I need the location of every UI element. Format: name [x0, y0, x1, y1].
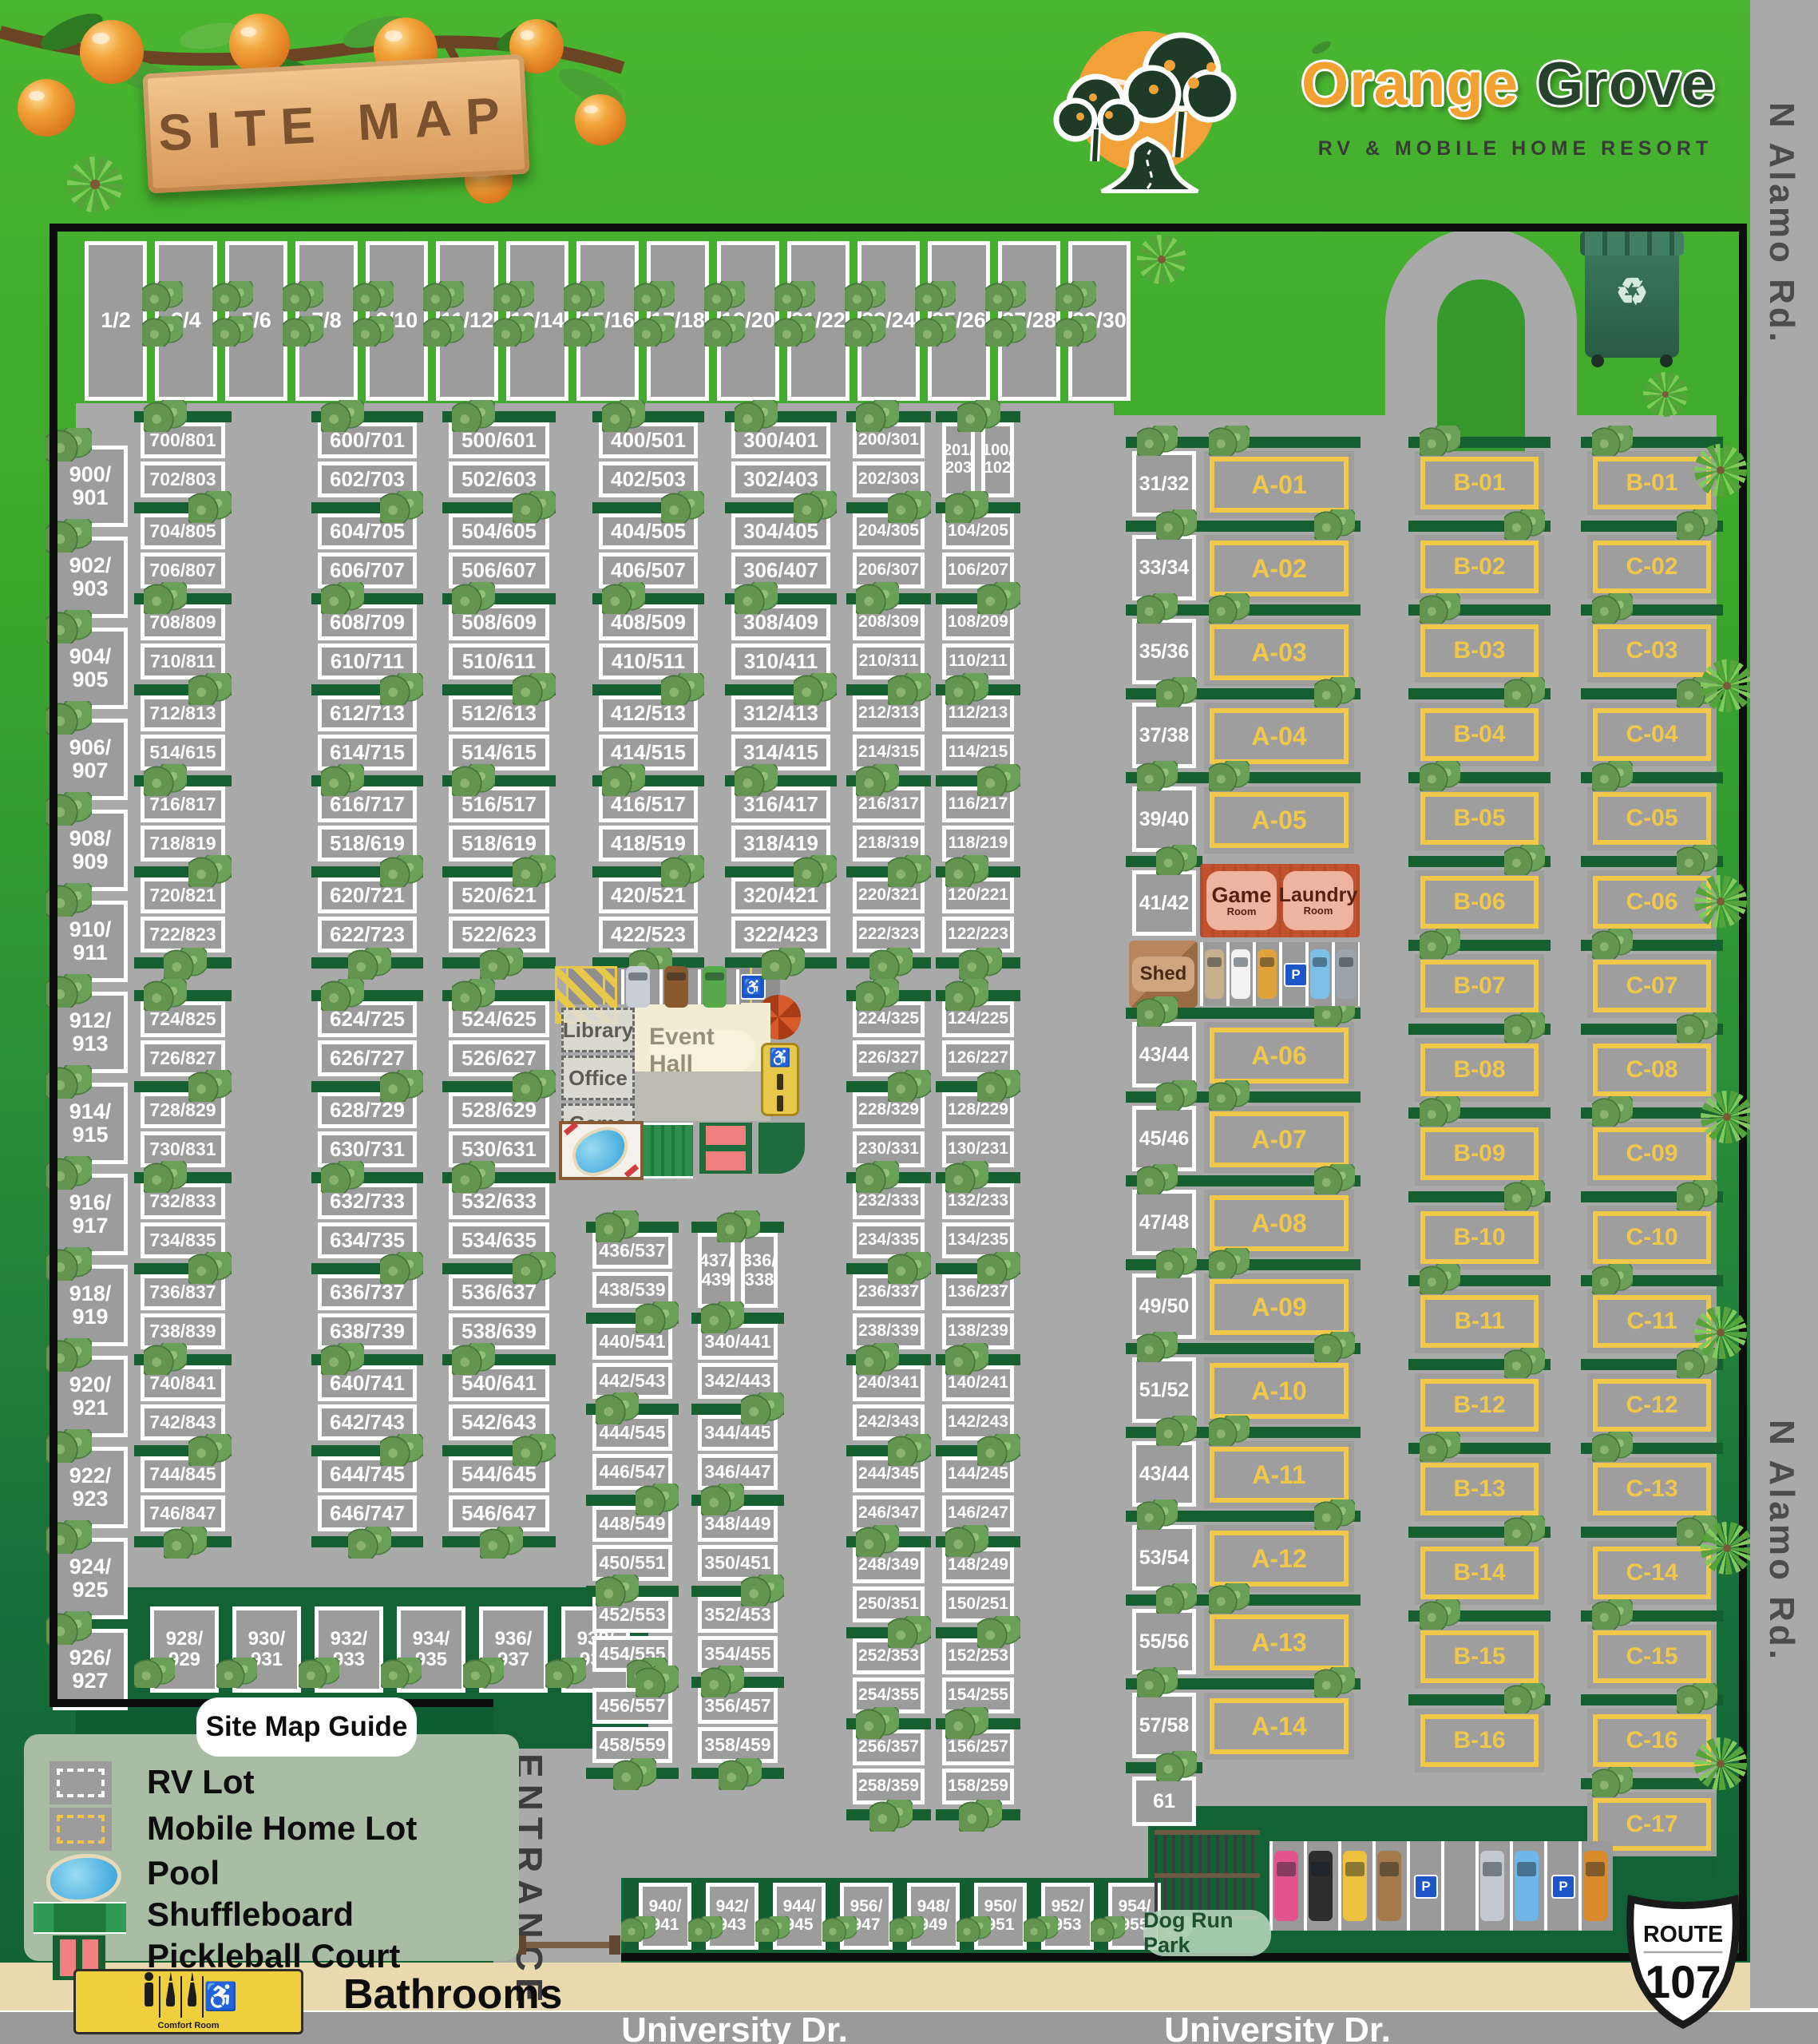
bush-icon [856, 764, 899, 796]
pool-area [559, 1121, 644, 1180]
bush-icon [493, 316, 534, 347]
dumpster-wheel-left [1591, 355, 1604, 367]
rv-lot: 35/36 [1132, 619, 1196, 684]
university-label-right: University Dr. [1118, 2010, 1437, 2044]
rv-lot: 1/2 [85, 241, 147, 401]
mobile-home-lot: B-03 [1415, 619, 1544, 683]
bush-icon [735, 764, 778, 796]
mobile-home-lot: C-02 [1587, 535, 1717, 599]
mobile-home-lot: B-14 [1415, 1541, 1544, 1605]
mobile-home-lot-border: B-08 [1420, 1044, 1539, 1096]
bush-icon [1677, 845, 1717, 875]
event-hall-label: Event Hall [649, 1024, 756, 1078]
mobile-home-lot: C-09 [1587, 1122, 1717, 1186]
mobile-home-lot: A-10 [1204, 1357, 1354, 1424]
dog-run-label-pill: Dog Run Park [1143, 1910, 1271, 1956]
bush-icon [380, 1070, 423, 1102]
mobile-home-lot: C-07 [1587, 954, 1717, 1018]
mobile-home-lot-border: C-12 [1593, 1379, 1711, 1432]
bush-icon [452, 1343, 495, 1375]
bush-icon [701, 1301, 744, 1333]
bush-icon [945, 855, 988, 887]
bush-icon [1592, 593, 1633, 624]
mobile-home-lot-border: B-13 [1420, 1463, 1539, 1515]
bush-icon [188, 1252, 232, 1284]
bush-icon [452, 400, 495, 432]
palm-icon [1643, 372, 1688, 417]
route-number: 107 [1645, 1957, 1721, 2008]
bush-icon [353, 281, 394, 311]
mobile-home-lot-border: C-07 [1593, 960, 1711, 1012]
mobile-home-lot-border: A-04 [1210, 708, 1349, 764]
mobile-home-lot-border: A-11 [1210, 1447, 1349, 1503]
dog-run-fence [1155, 1830, 1260, 1876]
bush-icon [283, 281, 323, 311]
bush-icon [1209, 1248, 1250, 1278]
mobile-home-lot-border: C-06 [1593, 876, 1711, 929]
palm-icon [1701, 1522, 1753, 1575]
bush-icon [380, 491, 423, 523]
mobile-home-lot-border: B-09 [1420, 1127, 1539, 1180]
bush-icon [380, 855, 423, 887]
entrance-gate-post-right [609, 1935, 620, 1955]
mobile-home-lot-border: B-03 [1420, 624, 1539, 677]
bush-icon [1420, 929, 1460, 959]
mobile-home-lot-border: C-10 [1593, 1211, 1711, 1264]
bush-icon [889, 1916, 924, 1942]
mobile-home-lot-border: A-08 [1210, 1195, 1349, 1251]
car-icon [1274, 1851, 1298, 1921]
bush-icon [762, 948, 805, 980]
bush-icon [348, 1527, 391, 1559]
parking-sign-icon: P [1284, 963, 1308, 987]
bush-icon [321, 764, 364, 796]
mobile-home-lot: B-06 [1415, 870, 1544, 934]
woman-figure-icon [188, 1983, 196, 2006]
bush-icon [822, 1916, 857, 1942]
bush-icon [719, 1758, 762, 1790]
mobile-home-lot-border: A-02 [1210, 541, 1349, 596]
mobile-home-lot-border: C-09 [1593, 1127, 1711, 1180]
bush-icon [621, 1916, 656, 1942]
mobile-home-lot-border: B-10 [1420, 1211, 1539, 1264]
bush-icon [283, 316, 323, 347]
rv-lot: 51/52 [1132, 1357, 1196, 1423]
mobile-home-lot-border: B-01 [1593, 457, 1711, 509]
bush-icon [636, 1666, 679, 1697]
pickleball-court [699, 1123, 752, 1174]
mobile-home-lot: B-12 [1415, 1373, 1544, 1437]
bush-icon [794, 673, 837, 705]
bush-icon [380, 1434, 423, 1466]
rv-lot: 37/38 [1132, 703, 1196, 768]
mobile-home-lot: B-09 [1415, 1122, 1544, 1186]
bush-icon [1420, 426, 1460, 456]
bush-icon [1091, 1916, 1125, 1942]
rv-lot: 49/50 [1132, 1274, 1196, 1339]
car-icon [703, 966, 727, 1008]
comfort-figure-icon [777, 1095, 783, 1111]
mobile-home-lot-border: B-14 [1420, 1547, 1539, 1599]
n-alamo-label-top: N Alamo Rd. [1761, 72, 1801, 375]
legend-shuffleboard-label: Shuffleboard [147, 1895, 354, 1934]
car-icon [1515, 1851, 1539, 1921]
bush-icon [381, 1658, 422, 1688]
bush-icon [144, 979, 187, 1011]
legend-mobile-home-label: Mobile Home Lot [147, 1809, 417, 1848]
bush-icon [977, 1252, 1020, 1284]
bush-icon [1314, 509, 1355, 540]
mobile-home-lot: A-12 [1204, 1525, 1354, 1592]
library-label: Library [563, 1018, 633, 1043]
bush-icon [1420, 593, 1460, 624]
palm-icon [1701, 660, 1753, 712]
bush-icon [423, 281, 464, 311]
bush-icon [1420, 1096, 1460, 1127]
site-map-sign: SITE MAP [142, 54, 529, 194]
legend-title: Site Map Guide [206, 1711, 408, 1743]
game-room-label: Game [1211, 885, 1271, 906]
brand-subtitle: RV & MOBILE HOME RESORT [1308, 137, 1723, 160]
bush-icon [1592, 1432, 1633, 1462]
bush-icon [1156, 845, 1197, 875]
bush-icon [1504, 677, 1545, 707]
car-icon [1337, 949, 1356, 999]
bush-icon [1314, 1332, 1355, 1362]
mobile-home-lot: A-03 [1204, 619, 1354, 686]
bush-icon [1420, 761, 1460, 791]
bush-icon [144, 1343, 187, 1375]
bush-icon [452, 582, 495, 614]
palm-icon [1694, 1306, 1747, 1359]
bush-icon [1137, 1499, 1178, 1530]
mobile-home-lot-border: C-16 [1593, 1714, 1711, 1767]
bush-icon [856, 1707, 899, 1739]
bush-icon [856, 1161, 899, 1193]
rv-lot: 43/44 [1132, 1022, 1196, 1087]
rv-lot: 57/58 [1132, 1693, 1196, 1758]
mobile-home-lot-border: B-15 [1420, 1630, 1539, 1683]
bush-icon [945, 1525, 988, 1557]
dog-run-label: Dog Run Park [1143, 1908, 1271, 1958]
mobile-home-lot-border: A-13 [1210, 1614, 1349, 1670]
bush-icon [1137, 1667, 1178, 1697]
bush-icon [717, 1210, 760, 1242]
bush-icon [741, 1392, 784, 1424]
bush-icon [869, 1800, 913, 1832]
route-107-shield: ROUTE 107 [1621, 1891, 1745, 2034]
mobile-home-lot-border: A-03 [1210, 624, 1349, 680]
bush-icon [513, 673, 556, 705]
bush-icon [774, 316, 815, 347]
event-hall-building: Event Hall [635, 1003, 770, 1121]
comfort-room-sign: ♿ [761, 1043, 799, 1116]
bush-icon [735, 400, 778, 432]
shuffleboard-courts [644, 1123, 693, 1178]
bush-icon [977, 764, 1020, 796]
lounger-icon [564, 1122, 578, 1135]
mobile-home-lot: C-03 [1587, 619, 1717, 683]
bush-icon [348, 948, 391, 980]
mobile-home-lot-border: A-09 [1210, 1279, 1349, 1335]
bush-icon [142, 281, 183, 311]
mobile-home-lot-border: B-04 [1420, 708, 1539, 761]
game-room-sub: Room [1227, 906, 1257, 917]
mobile-home-lot-border: B-02 [1420, 541, 1539, 593]
bush-icon [888, 1616, 931, 1648]
mobile-home-lot-border: A-12 [1210, 1531, 1349, 1586]
mobile-home-lot: B-16 [1415, 1709, 1544, 1773]
bush-icon [596, 1392, 639, 1424]
bush-icon [915, 281, 956, 311]
mobile-home-lot-border: C-15 [1593, 1630, 1711, 1683]
mobile-home-lot: A-02 [1204, 535, 1354, 602]
bush-icon [977, 582, 1020, 614]
bush-icon [1156, 509, 1197, 540]
office-label: Office [568, 1066, 628, 1091]
bush-icon [1592, 1599, 1633, 1630]
bush-icon [701, 1483, 744, 1515]
bush-icon [1592, 761, 1633, 791]
bush-icon [1137, 426, 1178, 456]
bush-icon [212, 281, 253, 311]
bush-icon [634, 281, 675, 311]
bathrooms-sign-icon: ♿ Comfort Room [73, 1969, 303, 2034]
bush-icon [1137, 1164, 1178, 1194]
pickleball-half [706, 1151, 746, 1171]
bush-icon [144, 764, 187, 796]
bush-icon [1156, 1416, 1197, 1446]
rv-lot: 45/46 [1132, 1106, 1196, 1171]
mobile-home-lot: B-13 [1415, 1457, 1544, 1521]
bush-icon [188, 1434, 232, 1466]
bush-icon [321, 1343, 364, 1375]
bush-icon [188, 491, 232, 523]
bush-icon [1504, 1515, 1545, 1546]
mobile-home-lot-border: C-02 [1593, 541, 1711, 593]
brand-orange-word: Orange [1301, 50, 1519, 118]
bush-icon [1592, 426, 1633, 456]
bush-icon [452, 979, 495, 1011]
legend-pool-label: Pool [147, 1854, 220, 1892]
bush-icon [513, 1252, 556, 1284]
bush-icon [888, 855, 931, 887]
mobile-home-lot-border: B-12 [1420, 1379, 1539, 1432]
route-word: ROUTE [1643, 1922, 1723, 1947]
game-room-plate: Game Room [1206, 871, 1277, 930]
bush-icon [856, 1343, 899, 1375]
bush-icon [704, 316, 745, 347]
bush-icon [423, 316, 464, 347]
bush-icon [1209, 761, 1250, 791]
bush-icon [945, 979, 988, 1011]
bush-icon [1504, 1012, 1545, 1043]
bush-icon [634, 316, 675, 347]
bush-icon [794, 491, 837, 523]
bush-icon [164, 948, 207, 980]
bush-icon [1504, 509, 1545, 540]
bush-icon [945, 1707, 988, 1739]
car-icon [1377, 1851, 1401, 1921]
mobile-home-lot-icon [50, 1808, 112, 1851]
mobile-home-lot: A-09 [1204, 1274, 1354, 1341]
palm-icon [1137, 235, 1186, 284]
bush-icon [188, 1070, 232, 1102]
bush-icon [1677, 1683, 1717, 1713]
office-building: Office [561, 1056, 635, 1100]
mobile-home-lot-border: C-11 [1593, 1295, 1711, 1348]
mobile-home-lot: A-14 [1204, 1693, 1354, 1760]
bush-icon [1592, 1096, 1633, 1127]
bush-icon [144, 400, 187, 432]
car-icon [664, 966, 688, 1008]
bush-icon [985, 316, 1026, 347]
bush-icon [321, 1161, 364, 1193]
bush-icon [1156, 1751, 1197, 1781]
bush-icon [188, 673, 232, 705]
bush-icon [888, 1252, 931, 1284]
rv-lot: 31/32 [1132, 451, 1196, 517]
recycle-dumpster: ♻ [1585, 240, 1679, 358]
legend-bathrooms-label: Bathrooms [343, 1971, 562, 2018]
bush-icon [1504, 845, 1545, 875]
mobile-home-lot-border: A-05 [1210, 792, 1349, 848]
mobile-home-lot-border: C-04 [1593, 708, 1711, 761]
bush-icon [602, 764, 645, 796]
bush-icon [1677, 1012, 1717, 1043]
bush-icon [636, 1483, 679, 1515]
bush-icon [977, 1616, 1020, 1648]
car-icon [1343, 1851, 1367, 1921]
bush-icon [596, 1210, 639, 1242]
bush-icon [564, 281, 604, 311]
bush-icon [661, 855, 704, 887]
bush-icon [545, 1658, 586, 1688]
mobile-home-lot-border: B-11 [1420, 1295, 1539, 1348]
bush-icon [1592, 929, 1633, 959]
rv-lot: 39/40 [1132, 786, 1196, 852]
bush-icon [144, 1161, 187, 1193]
mobile-home-lot: C-08 [1587, 1038, 1717, 1102]
bush-icon [1156, 677, 1197, 707]
rv-lot: 201/203 [942, 422, 975, 497]
dumpster-lid [1580, 232, 1684, 255]
bush-icon [513, 1434, 556, 1466]
bush-icon [380, 1252, 423, 1284]
bush-icon [661, 673, 704, 705]
bush-icon [513, 855, 556, 887]
rv-lot: 43/44 [1132, 1441, 1196, 1507]
bush-icon [701, 1666, 744, 1697]
bush-icon [856, 582, 899, 614]
mobile-home-lot-border: C-14 [1593, 1547, 1711, 1599]
bush-icon [299, 1658, 339, 1688]
bush-icon [661, 491, 704, 523]
car-icon [1231, 949, 1250, 999]
comfort-wheelchair-icon: ♿ [769, 1048, 790, 1068]
mobile-home-lot: C-12 [1587, 1373, 1717, 1437]
comfort-figure-icon [777, 1074, 783, 1090]
bush-icon [164, 1527, 207, 1559]
entrance-gate-bar [521, 1942, 615, 1948]
bush-icon [888, 1070, 931, 1102]
mobile-home-lot-border: C-05 [1593, 792, 1711, 845]
bush-icon [985, 281, 1026, 311]
mobile-home-lot: C-14 [1587, 1541, 1717, 1605]
mobile-home-lot: B-11 [1415, 1289, 1544, 1353]
event-hall-plate: Event Hall [649, 1030, 756, 1072]
bush-icon [1209, 1080, 1250, 1111]
bush-icon [1056, 281, 1096, 311]
bush-icon [1209, 1416, 1250, 1446]
mobile-home-lot: B-04 [1415, 703, 1544, 766]
brand-title: Orange Grove [1301, 50, 1749, 119]
bush-icon [1209, 426, 1250, 456]
bush-icon [212, 316, 253, 347]
mobile-home-lot: A-06 [1204, 1022, 1354, 1089]
site-map-canvas: SITE MAP Orange Grove RV & MOBILE HOME R… [0, 0, 1818, 2044]
laundry-room-plate: Laundry Room [1283, 871, 1353, 930]
bush-icon [957, 400, 1000, 432]
bush-icon [321, 400, 364, 432]
legend-rv-label: RV Lot [147, 1763, 255, 1801]
orange-grove-logo [1026, 18, 1265, 193]
pickleball-half [706, 1126, 746, 1145]
bush-icon [845, 281, 885, 311]
bush-icon [1592, 1264, 1633, 1294]
mobile-home-lot-border: A-14 [1210, 1698, 1349, 1754]
bush-icon [945, 491, 988, 523]
bush-icon [321, 582, 364, 614]
bush-icon [513, 1070, 556, 1102]
bush-icon [1314, 1667, 1355, 1697]
bush-icon [1314, 677, 1355, 707]
shuffleboard-legend-icon [34, 1902, 126, 1934]
mobile-home-lot: B-15 [1415, 1625, 1544, 1689]
bush-icon [452, 764, 495, 796]
mobile-home-lot: C-05 [1587, 786, 1717, 850]
game-laundry-building: Game Room Laundry Room [1200, 864, 1360, 937]
bush-icon [1056, 316, 1096, 347]
bush-icon [1420, 1264, 1460, 1294]
park-border-left [50, 224, 57, 1707]
bush-icon [452, 1161, 495, 1193]
bush-icon [602, 400, 645, 432]
car-icon [1258, 949, 1277, 999]
rv-lot: 100/102 [981, 422, 1014, 497]
mobile-home-lot: A-07 [1204, 1106, 1354, 1173]
bush-icon [1137, 996, 1178, 1027]
mobile-home-lot: C-10 [1587, 1206, 1717, 1270]
rv-lot: 47/48 [1132, 1190, 1196, 1255]
rv-lot: 33/34 [1132, 535, 1196, 600]
mobile-home-lot: A-11 [1204, 1441, 1354, 1508]
bush-icon [1137, 761, 1178, 791]
bush-icon [945, 1343, 988, 1375]
bush-icon [845, 316, 885, 347]
bush-icon [888, 491, 931, 523]
mobile-home-lot-border: A-06 [1210, 1028, 1349, 1083]
recycle-icon: ♻ [1585, 270, 1679, 313]
bush-icon [869, 948, 913, 980]
mobile-home-lot-border: B-16 [1420, 1714, 1539, 1767]
laundry-room-sub: Room [1304, 905, 1333, 916]
rv-lot: 53/54 [1132, 1525, 1196, 1590]
car-icon [1205, 949, 1224, 999]
palm-icon [1701, 1091, 1753, 1143]
bush-icon [564, 316, 604, 347]
laundry-room-label: Laundry [1279, 885, 1358, 905]
